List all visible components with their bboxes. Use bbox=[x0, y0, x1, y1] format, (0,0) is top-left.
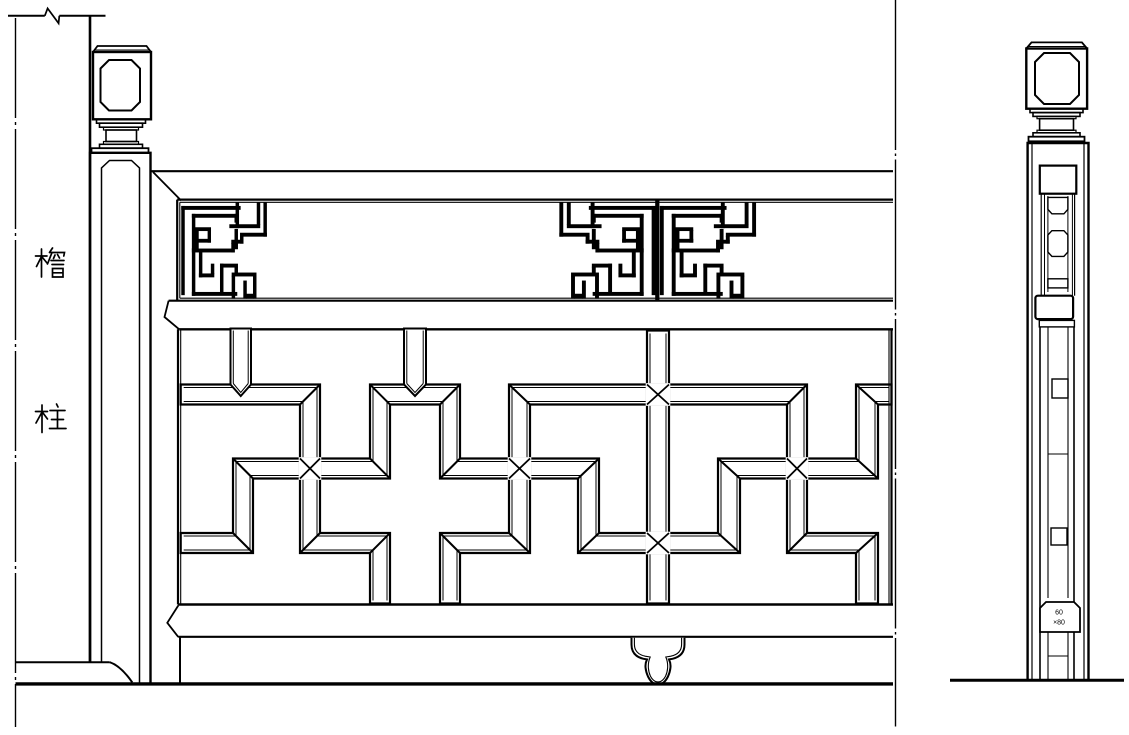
svg-text:×80: ×80 bbox=[1053, 620, 1065, 627]
svg-text:60: 60 bbox=[1055, 610, 1063, 617]
